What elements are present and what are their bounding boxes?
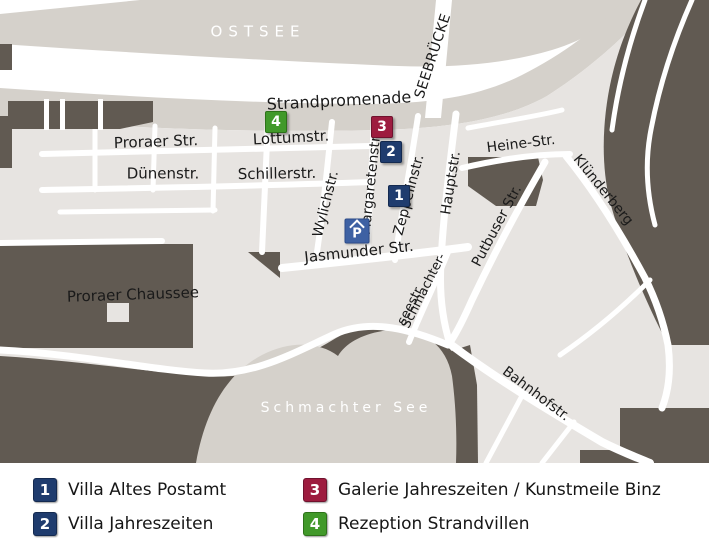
- legend-item-4: 4Rezeption Strandvillen: [303, 512, 530, 536]
- legend-marker-4: 4: [303, 512, 327, 536]
- map-label-duenenstr: Dünenstr.: [127, 167, 200, 182]
- map-label-ostsee: OSTSEE: [211, 25, 306, 40]
- map-label-schmachter-see: Schmachter See: [261, 401, 432, 415]
- map-canvas: OSTSEESEEBRÜCKEStrandpromenadeProraer St…: [0, 0, 709, 463]
- map-label-proraer-chaussee: Proraer Chaussee: [67, 285, 200, 305]
- parking-icon: P: [345, 219, 370, 244]
- legend-label-2: Villa Jahreszeiten: [68, 514, 213, 534]
- map-label-lottumstr: Lottumstr.: [252, 129, 329, 148]
- binz-map-page: OSTSEESEEBRÜCKEStrandpromenadeProraer St…: [0, 0, 709, 551]
- legend-item-1: 1Villa Altes Postamt: [33, 478, 226, 502]
- legend-marker-1: 1: [33, 478, 57, 502]
- legend-label-1: Villa Altes Postamt: [68, 480, 226, 500]
- map-label-kluenderberg: Klünderberg: [571, 152, 636, 228]
- map-marker-1: 1: [388, 185, 410, 207]
- legend-marker-2: 2: [33, 512, 57, 536]
- legend-label-3: Galerie Jahreszeiten / Kunstmeile Binz: [338, 480, 661, 500]
- map-label-putbuser-str: Putbuser Str.: [470, 183, 524, 269]
- map-labels-layer: OSTSEESEEBRÜCKEStrandpromenadeProraer St…: [0, 0, 709, 463]
- map-label-schillerstr: Schillerstr.: [238, 166, 317, 182]
- map-label-heine-str: Heine-Str.: [486, 133, 556, 155]
- map-label-proraer-str: Proraer Str.: [114, 133, 199, 151]
- map-marker-2: 2: [380, 141, 402, 163]
- map-label-strandpromenade: Strandpromenade: [266, 89, 411, 113]
- legend-marker-3: 3: [303, 478, 327, 502]
- legend: 1Villa Altes Postamt2Villa Jahreszeiten3…: [0, 463, 709, 551]
- legend-label-4: Rezeption Strandvillen: [338, 514, 530, 534]
- map-marker-3: 3: [371, 116, 393, 138]
- map-label-seebruecke: SEEBRÜCKE: [413, 12, 454, 100]
- legend-item-2: 2Villa Jahreszeiten: [33, 512, 213, 536]
- map-marker-4: 4: [265, 111, 287, 133]
- legend-item-3: 3Galerie Jahreszeiten / Kunstmeile Binz: [303, 478, 661, 502]
- map-label-bahnhofstr: Bahnhofstr.: [500, 364, 572, 423]
- map-label-hauptstr: Hauptstr.: [439, 150, 463, 215]
